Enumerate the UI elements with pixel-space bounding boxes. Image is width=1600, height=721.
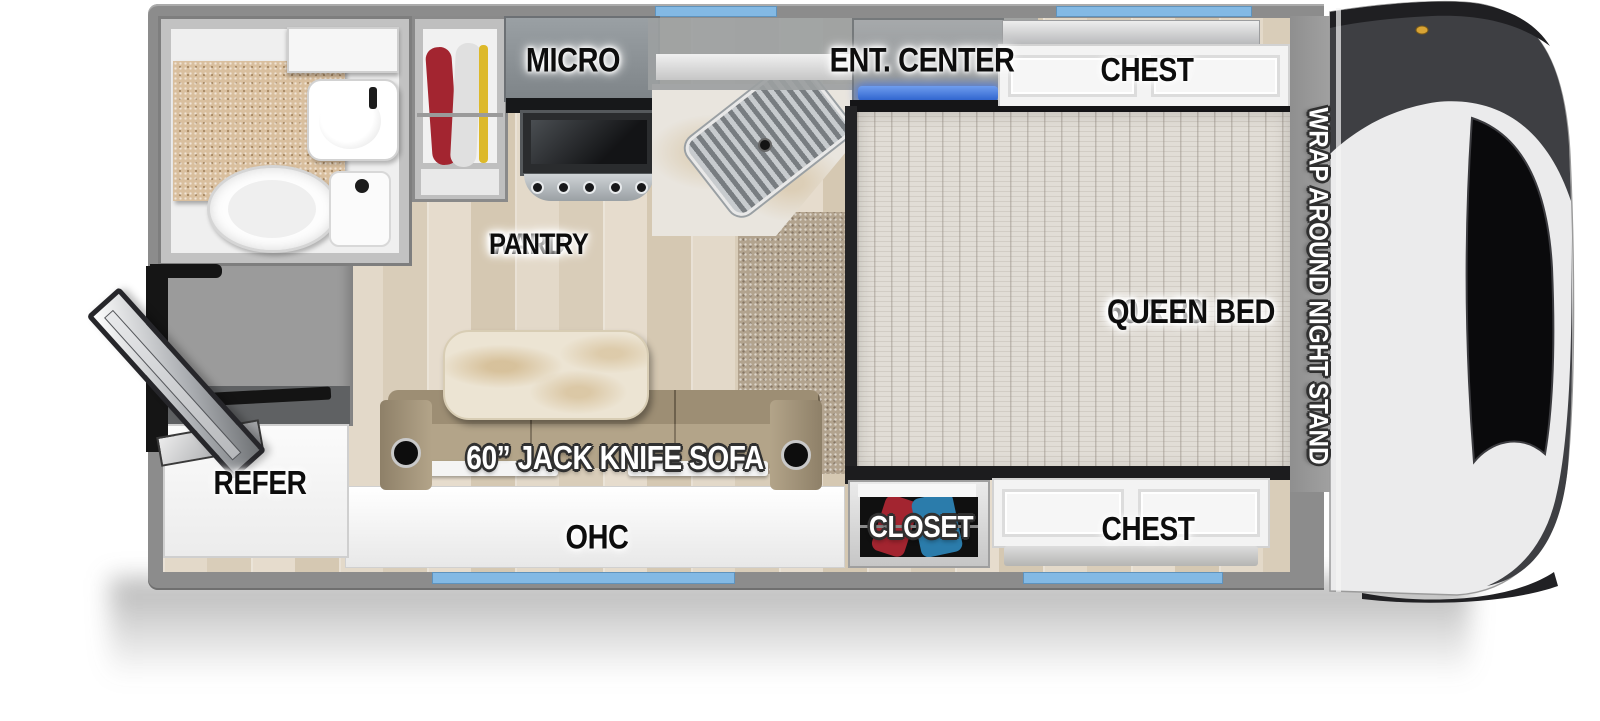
- truck-cab-nose-cap: [1322, 0, 1580, 612]
- bathroom-sink: [307, 79, 399, 161]
- chest-top-ledge: [1002, 20, 1260, 45]
- label-refer: REFER: [214, 464, 307, 502]
- pantry-base-cabinet: [421, 169, 499, 195]
- door-jamb: [150, 264, 222, 278]
- range-knob-icon: [635, 181, 648, 194]
- label-ohc: OHC: [566, 519, 629, 558]
- window-top-left: [655, 6, 777, 17]
- clothes-rod: [417, 113, 503, 117]
- sink-drain-icon: [758, 138, 772, 152]
- dinette-table: [443, 330, 649, 420]
- ward-pantry-cabinet: [412, 16, 508, 202]
- window-bottom-left: [432, 572, 735, 584]
- bed-side-rail: [845, 106, 857, 484]
- window-bottom-right: [1023, 572, 1223, 584]
- bathroom: [158, 16, 412, 266]
- range-knob-icon: [583, 181, 596, 194]
- label-pantry-line: PANTRY: [489, 229, 588, 261]
- drop-shadow: [110, 578, 1470, 708]
- cap-joint-highlight: [1336, 8, 1341, 592]
- label-sofa: 60” JACK KNIFE SOFA: [466, 439, 763, 477]
- medicine-cabinet: [287, 27, 399, 73]
- range-knob-panel: [524, 174, 654, 201]
- window-top-right: [1056, 6, 1252, 17]
- range-knob-icon: [609, 181, 622, 194]
- shower-drain-icon: [355, 179, 369, 193]
- toilet: [207, 165, 339, 253]
- tv-accent-light: [858, 86, 998, 101]
- range-knob-icon: [557, 181, 570, 194]
- label-ent-center: ENT. CENTER: [830, 42, 1015, 81]
- label-closet: CLOSET: [869, 509, 973, 545]
- label-night-stand: WRAP AROUND NIGHT STAND: [1303, 107, 1334, 464]
- label-bed-type: QUEEN BED: [1107, 295, 1275, 331]
- label-chest-bottom: CHEST: [1102, 510, 1195, 548]
- range-knob-icon: [531, 181, 544, 194]
- queen-bed-mattress: [857, 112, 1290, 472]
- hanging-clothes-yellow: [479, 45, 488, 163]
- range-oven: [520, 110, 658, 176]
- cupholder-icon: [781, 440, 811, 470]
- faucet-icon: [369, 87, 377, 109]
- marker-light-icon: [1416, 26, 1428, 34]
- label-micro: MICRO: [526, 42, 620, 81]
- oven-glass: [531, 120, 647, 164]
- cupholder-icon: [391, 438, 421, 468]
- label-chest-top: CHEST: [1101, 51, 1194, 89]
- floorplan-canvas: MICRO ENT. CENTER CHEST WARD PANTRY 60 X…: [0, 0, 1600, 721]
- chest-bottom-ledge: [1004, 546, 1258, 566]
- closet-ledge: [858, 484, 976, 497]
